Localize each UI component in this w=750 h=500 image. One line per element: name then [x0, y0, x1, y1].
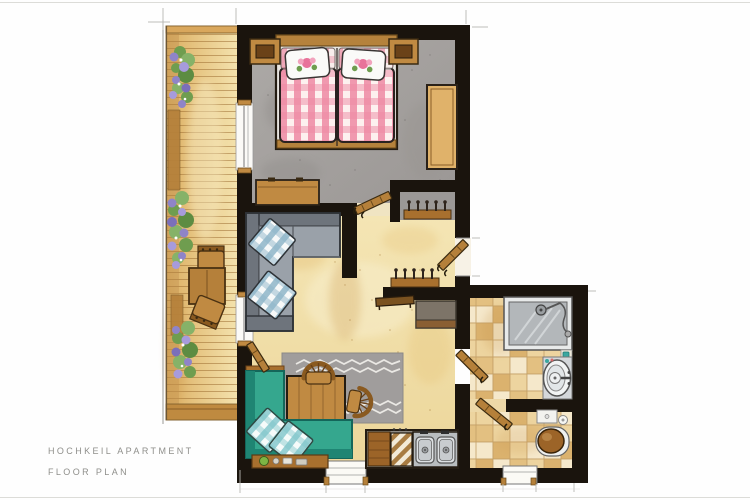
wall-south-a [237, 468, 326, 483]
bedroom-sideboard [256, 178, 319, 206]
nightstand-left [250, 39, 280, 64]
hall-wall-stub [342, 216, 357, 278]
bathroom-wall-east [572, 285, 588, 483]
kitchen-counter [366, 428, 458, 468]
kitchen-cabinet [368, 432, 390, 466]
floor-plan-canvas [0, 0, 750, 500]
bathroom-wall-north [455, 285, 588, 298]
bench-front-board [252, 455, 328, 468]
niche-wall-north [390, 180, 470, 192]
toilet [536, 410, 569, 456]
washbasin [543, 357, 572, 399]
wc-window [501, 466, 537, 485]
nightstand-right [389, 39, 418, 64]
wall-east-b [455, 192, 470, 238]
pillow-left [285, 47, 330, 80]
wall-south-b [366, 468, 503, 483]
dining-chair-top [304, 363, 333, 384]
toilet-seat [538, 429, 564, 453]
duvet-left [280, 68, 336, 142]
niche-wall-west [390, 180, 400, 222]
kitchen-window [324, 461, 368, 485]
faucet-right [441, 431, 449, 435]
pillow-right [341, 49, 386, 81]
bedroom-balcony-window [236, 100, 253, 173]
dining-dresser [416, 301, 456, 328]
bed [276, 35, 397, 149]
double-sink [413, 431, 458, 468]
counter-knobs [393, 428, 408, 431]
balcony [163, 20, 238, 424]
balcony-bottom-edge [166, 404, 238, 420]
planter-box-upper [168, 110, 180, 190]
bed-headboard [276, 35, 397, 46]
floor-plan-page: HOCHKEIL APARTMENT FLOOR PLAN [0, 0, 750, 500]
balcony-top-edge [166, 26, 238, 33]
shower [504, 297, 572, 350]
faucet-left [420, 431, 428, 435]
wardrobe [427, 85, 457, 169]
cutting-board [391, 433, 412, 466]
bathroom-wall-west-a [455, 298, 470, 349]
